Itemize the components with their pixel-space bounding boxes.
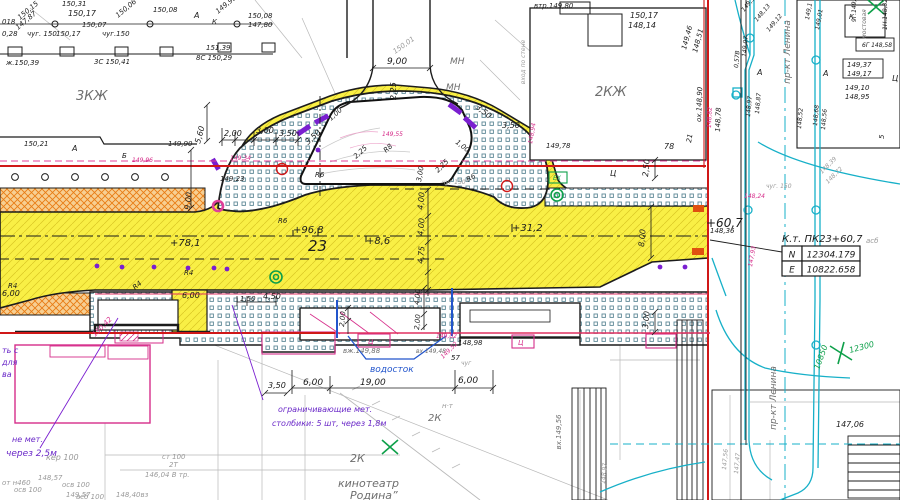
plan-label: вж.149,88	[343, 347, 381, 355]
plan-label: 3,50	[268, 381, 286, 390]
plan-label: 148,78	[714, 107, 723, 132]
plan-label: 148,14	[628, 21, 656, 30]
plan-label: 149,37	[847, 61, 872, 69]
plan-label: А	[193, 11, 199, 20]
plan-label: водосток	[370, 365, 414, 375]
plan-label: 148,87	[754, 92, 763, 114]
plan-label: столбики: 5 шт, через 1,8м	[272, 419, 386, 428]
plan-label: Ц	[368, 338, 374, 346]
plan-label: 6,00	[303, 378, 323, 388]
plan-label: 147,80	[248, 21, 273, 29]
plan-label: 0,28	[2, 30, 18, 38]
plan-label: 6,00	[182, 291, 200, 300]
plan-label: 150,17	[630, 11, 659, 20]
plan-label: 148,95	[845, 93, 870, 101]
plan-label: 148,24	[744, 193, 765, 200]
building-topright	[530, 8, 706, 160]
plan-label: ограничивающие мет.	[278, 405, 372, 414]
plan-label: 3КЖ	[76, 89, 109, 104]
plan-label: +31,2	[512, 223, 543, 234]
plan-label: +78,1	[170, 238, 201, 249]
plan-label: осв 100	[14, 486, 42, 494]
plan-label: 2,00	[224, 129, 242, 138]
plan-label: 149,96	[132, 157, 153, 164]
plan-label: 3,00	[641, 311, 652, 330]
plan-label: 4,00	[416, 192, 427, 211]
plan-label: Ц	[610, 169, 616, 178]
plan-label: 21	[685, 133, 694, 143]
plan-label: Ц	[892, 74, 898, 83]
plan-label: Ц	[518, 339, 524, 347]
plan-label: 2Т	[169, 461, 178, 469]
plan-label: 9Г.149,46	[851, 0, 858, 22]
plan-label: А	[71, 144, 77, 153]
plan-label: 148,13	[753, 3, 772, 24]
plan-label: 151,39	[206, 44, 231, 52]
plan-label: 2,50	[641, 159, 652, 178]
coord-e-label: E	[789, 266, 795, 276]
plan-label: МН	[446, 83, 461, 93]
plan-label: 150,07	[82, 21, 107, 29]
traffic-island	[210, 0, 548, 211]
plan-label: 149,12	[765, 13, 784, 34]
plan-label: 150,17	[56, 30, 81, 38]
plan-label: н·т	[442, 402, 454, 410]
plan-label: 3С 150,41	[94, 58, 130, 66]
plan-label: 6,00	[458, 376, 478, 386]
plan-label: R6	[278, 217, 288, 225]
plan-label: 0,57В	[733, 50, 741, 68]
plan-label: 2,25	[389, 82, 398, 100]
plan-label: пр-кт Ленина	[769, 366, 779, 430]
plan-label: 149,17	[847, 70, 872, 78]
coord-table-title: К.т. ПК23+60,7	[782, 234, 863, 245]
coord-n-value: 12304.179	[807, 251, 856, 261]
plan-label: ть с	[2, 346, 19, 355]
plan-label: ж.150,39	[5, 59, 40, 67]
site-plan-canvas: К.т. ПК23+60,7 N 12304.179 E 10822.658 1…	[0, 0, 900, 500]
plan-label: для	[1, 358, 18, 367]
plan-label: ох.148,90	[695, 86, 704, 122]
plan-label: R6	[315, 171, 325, 179]
plan-label: 1,50	[240, 295, 256, 303]
plan-label: 150,06	[114, 0, 138, 20]
plan-label: чуг. 150	[27, 30, 57, 38]
plan-label: 3,50	[279, 129, 297, 138]
north-right-sidewalk	[545, 188, 708, 206]
plan-label: 146,04 В тр.	[145, 471, 190, 479]
plan-label: вход по стене	[520, 39, 527, 84]
plan-label: чуг 150	[442, 179, 466, 186]
plan-label: 150,21	[24, 140, 49, 148]
plan-label: 018	[2, 18, 16, 26]
plan-label: 4,00	[413, 288, 422, 305]
plan-label: 5	[878, 134, 886, 139]
plan-label: 149,10	[845, 84, 870, 92]
plan-label: чуг	[461, 360, 472, 367]
plan-label: чуг.150	[102, 30, 130, 38]
plan-label: 150,01	[392, 35, 417, 56]
plan-label: пр-кт Ленина	[783, 20, 793, 84]
plan-label: 57	[451, 354, 460, 362]
plan-label: 12300	[848, 340, 875, 355]
plan-label: А	[822, 69, 828, 78]
plan-label: Родина”	[350, 489, 398, 500]
plan-label: 150,08	[153, 6, 178, 14]
ramp-structures	[572, 320, 703, 500]
plan-label: 150,08	[248, 12, 273, 20]
plan-label: 149,55	[382, 131, 403, 138]
plan-label: 8С 150,29	[196, 54, 233, 62]
plan-label: 2К	[428, 413, 442, 424]
plan-label: 3,00	[256, 126, 274, 135]
plan-label: 148,57	[38, 474, 63, 482]
plan-label: вх.149,56	[555, 414, 563, 450]
plan-label: 148,36	[710, 227, 735, 235]
plan-label: 148,98	[458, 339, 483, 347]
plan-label: 78	[664, 142, 674, 151]
plan-label: 1Н.148,32	[882, 0, 889, 30]
plan-label: 5,60	[193, 125, 206, 145]
plan-label: 2,00	[338, 310, 347, 327]
plan-label: 9,00	[183, 192, 194, 211]
plan-label: 2,00	[413, 313, 422, 330]
building-bottomleft-pink	[15, 330, 163, 423]
plan-label: 2К	[350, 452, 366, 465]
plan-label: кер 100	[46, 453, 79, 462]
plan-label: R4	[184, 269, 193, 277]
plan-label: 6Г 148,58	[862, 42, 892, 49]
plan-label: 150,17	[68, 9, 97, 18]
plan-label: 149,23	[220, 175, 245, 183]
plan-label: ЕХ	[553, 175, 562, 182]
plan-label: 150,31	[62, 0, 87, 8]
plan-label: А	[756, 68, 762, 77]
plan-label: 148,97	[745, 95, 754, 117]
plan-label: МН	[450, 57, 465, 67]
plan-label: 8,00	[637, 229, 648, 248]
plan-label: 6,00	[2, 289, 20, 298]
plan-label: 4,50	[263, 292, 281, 301]
plan-label: 148,82	[706, 107, 714, 128]
plan-label: 149,07	[741, 35, 750, 57]
plan-label: чуг. 150	[766, 183, 792, 190]
plan-label: не мет.	[12, 435, 43, 444]
plan-label: 2КЖ	[595, 85, 628, 100]
plan-label: Б	[122, 152, 127, 160]
plan-label: 147,56	[721, 448, 730, 470]
plan-label: втр.149,80	[534, 2, 574, 10]
plan-label: 147,06	[836, 420, 864, 429]
plan-label: мостовая	[861, 9, 868, 39]
coordinate-table: К.т. ПК23+60,7 N 12304.179 E 10822.658	[710, 234, 863, 276]
plan-label: 4,00	[416, 218, 427, 237]
coord-e-value: 10822.658	[807, 266, 856, 276]
plan-label: 148,97	[600, 462, 609, 484]
plan-label: осв 100	[62, 481, 90, 489]
lamp-symbols	[12, 174, 169, 181]
plan-label: 9,00	[387, 57, 407, 67]
plan-label: 3,50	[502, 121, 520, 130]
coord-n-label: N	[789, 251, 796, 261]
plan-label: +96,8	[293, 225, 324, 236]
plan-label: 149,90	[168, 140, 193, 148]
plan-label: 149,34	[230, 155, 251, 162]
plan-label: 19,00	[360, 378, 386, 388]
plan-label: 149,78	[546, 142, 571, 150]
plan-label: ва	[2, 370, 12, 379]
plan-label: асб	[866, 237, 879, 245]
plan-label: асб 100	[76, 493, 105, 500]
plan-label: +8,6	[366, 236, 390, 247]
site-plan-page: { "palette":{"k":"#1c1c1c","g":"#9a9a9a"…	[0, 0, 900, 500]
green-x-mark	[382, 440, 398, 454]
stairs-structure	[848, 436, 900, 498]
plan-label: 149,02	[436, 333, 457, 340]
plan-label: 4,75	[416, 246, 427, 265]
plan-label: 23	[308, 237, 327, 255]
plan-label: К	[212, 18, 218, 26]
plan-label: ст 100	[162, 453, 186, 461]
plan-label: 148,40вз	[116, 491, 149, 499]
plan-label: 149,93	[214, 0, 238, 16]
